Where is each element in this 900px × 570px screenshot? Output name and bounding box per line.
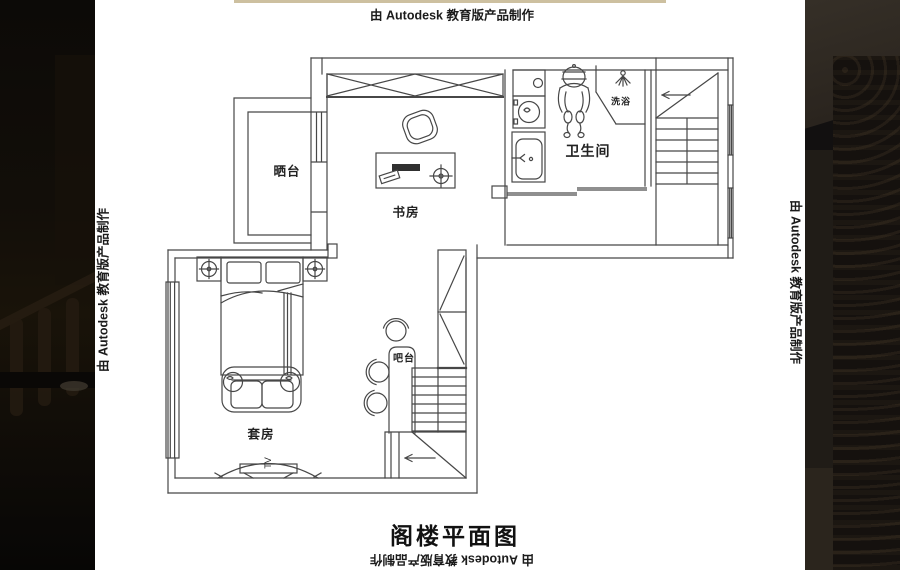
cad-floorplan-screenshot: 晒台 书房 卫生间 套房 吧台 洗浴 TV 阁楼平面图 由 Autodesk 教… bbox=[0, 0, 900, 570]
study-furniture bbox=[327, 74, 503, 188]
closet bbox=[327, 74, 503, 97]
drain-hole bbox=[534, 79, 543, 88]
bar-stools bbox=[364, 319, 408, 416]
room-label-suite: 套房 bbox=[247, 424, 274, 443]
desk bbox=[376, 153, 455, 188]
faucet bbox=[512, 155, 525, 162]
room-label-study: 书房 bbox=[392, 202, 419, 221]
watermark-top: 由 Autodesk 教育版产品制作 bbox=[370, 5, 534, 24]
loveseat-sofa bbox=[222, 367, 301, 412]
desk-chair bbox=[400, 107, 440, 146]
suite-furniture bbox=[197, 257, 327, 478]
staircase-upper bbox=[656, 73, 718, 245]
sliding-door bbox=[492, 186, 647, 198]
stair-direction-arrow bbox=[405, 455, 435, 462]
watermark-bottom: 由 Autodesk 教育版产品制作 bbox=[370, 552, 534, 570]
stair-direction-arrow bbox=[662, 92, 690, 99]
tv-label: TV bbox=[263, 457, 273, 469]
double-bed bbox=[221, 257, 303, 375]
counter bbox=[513, 70, 545, 96]
pillow bbox=[266, 262, 300, 283]
drawing-title: 阁楼平面图 bbox=[390, 517, 520, 551]
toilet-person-symbol bbox=[558, 65, 589, 138]
bar-and-lower-stairs bbox=[364, 250, 466, 478]
pillow bbox=[227, 262, 261, 283]
watermark-left: 由 Autodesk 教育版产品制作 bbox=[93, 208, 112, 372]
shower-head-icon bbox=[621, 71, 625, 75]
nightstand-left bbox=[197, 257, 221, 281]
room-label-shower: 洗浴 bbox=[611, 95, 631, 108]
room-label-terrace: 晒台 bbox=[273, 161, 300, 180]
floor-plan-drawing bbox=[0, 0, 900, 570]
room-label-bar: 吧台 bbox=[393, 350, 415, 365]
nightstand-right bbox=[303, 257, 327, 281]
wardrobe bbox=[438, 250, 466, 368]
watermark-right: 由 Autodesk 教育版产品制作 bbox=[788, 200, 807, 364]
room-label-bathroom: 卫生间 bbox=[566, 141, 611, 161]
staircase-lower bbox=[385, 368, 466, 478]
bathroom-fixtures bbox=[492, 65, 647, 198]
